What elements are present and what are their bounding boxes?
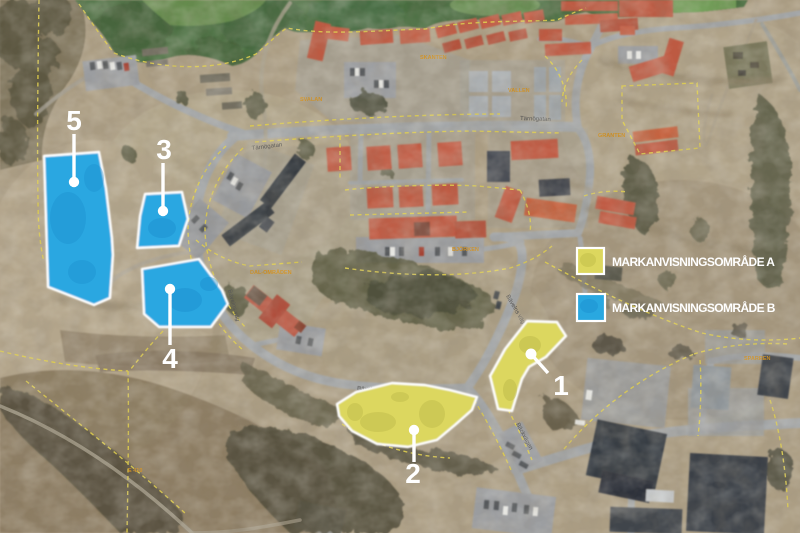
svg-text:3: 3 <box>156 134 172 165</box>
svg-text:2: 2 <box>405 458 421 489</box>
svg-text:5: 5 <box>66 105 82 136</box>
svg-text:1: 1 <box>553 370 569 401</box>
svg-text:4: 4 <box>162 343 178 374</box>
svg-text:MARKANVISNINGSOMRÅDE A: MARKANVISNINGSOMRÅDE A <box>612 254 775 269</box>
svg-text:MARKANVISNINGSOMRÅDE B: MARKANVISNINGSOMRÅDE B <box>612 300 776 315</box>
